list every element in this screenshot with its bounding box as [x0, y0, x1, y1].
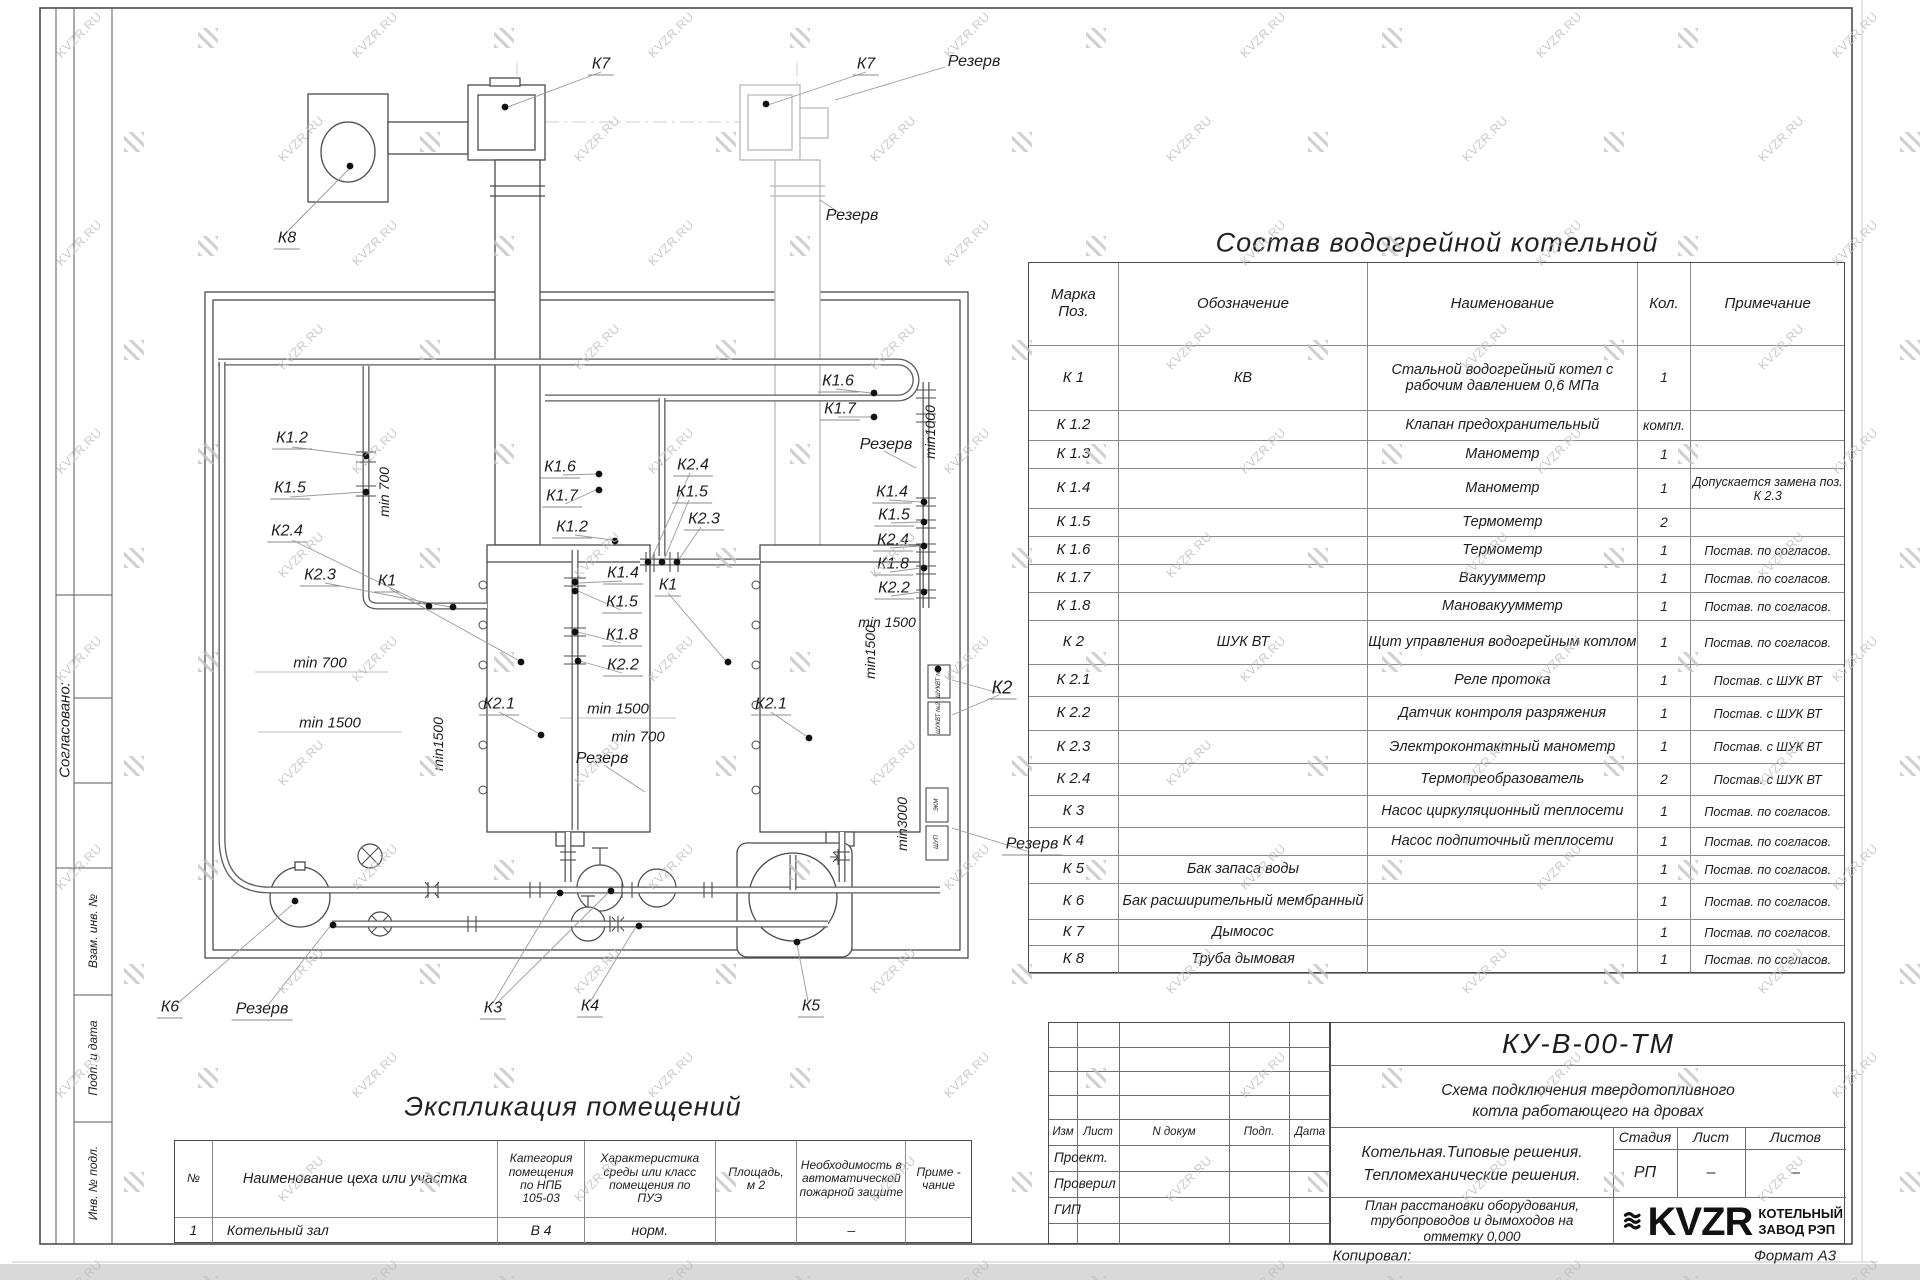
equipment-cell [1368, 920, 1637, 945]
equipment-row: К 8Труба дымовая1Постав. по согласов. [1029, 946, 1844, 974]
equipment-cell: Насос циркуляционный теплосети [1368, 796, 1637, 827]
equipment-cell: 1 [1638, 469, 1692, 508]
expansion-tank-k6 [270, 862, 330, 927]
equipment-cell [1119, 469, 1368, 508]
equipment-cell: Допускается замена поз. К 2.3 [1691, 469, 1844, 508]
equipment-cell: ШУК ВТ [1119, 621, 1368, 664]
equipment-cell: Труба дымовая [1119, 946, 1368, 973]
equipment-cell [1119, 828, 1368, 855]
equipment-cell: К 2.3 [1029, 731, 1119, 763]
equipment-cell: Клапан предохранительный [1368, 411, 1637, 440]
drawing-sheet: Согласовано: Взам. инв. № Подп. и дата И… [0, 0, 1920, 1280]
rooms-row: 1Котельный залВ 4норм.– [175, 1218, 971, 1243]
equipment-cell [1119, 537, 1368, 564]
rooms-table-title: Экспликация помещений [404, 1092, 741, 1123]
equipment-cell: К 1.7 [1029, 565, 1119, 592]
sheet-title: План расстановки оборудования, трубопров… [1331, 1197, 1613, 1245]
rev-role-cell: Проект. [1049, 1145, 1119, 1171]
equipment-cell: Постав. по согласов. [1691, 621, 1844, 664]
equipment-row: К 2.3Электроконтактный манометр1Постав. … [1029, 731, 1844, 764]
equipment-cell: К 7 [1029, 920, 1119, 945]
rooms-header-cell: Категория помещения по НПБ 105-03 [498, 1141, 585, 1217]
doc-number: КУ-В-00-ТМ [1331, 1023, 1846, 1065]
equipment-cell: Постав. по согласов. [1691, 796, 1844, 827]
rev-header-cell: Лист [1077, 1119, 1119, 1145]
title-block: КУ-В-00-ТМ Схема подключения твердотопли… [1330, 1022, 1845, 1244]
equipment-cell: Постав. с ШУК ВТ [1691, 665, 1844, 696]
equipment-cell: К 2.1 [1029, 665, 1119, 696]
equipment-cell: 1 [1638, 828, 1692, 855]
equipment-cell [1691, 411, 1844, 440]
equipment-cell: Бак запаса воды [1119, 856, 1368, 883]
equipment-cell: Постав. по согласов. [1691, 565, 1844, 592]
equipment-cell: Постав. с ШУК ВТ [1691, 697, 1844, 730]
equipment-cell: К 1.6 [1029, 537, 1119, 564]
equipment-cell: Электроконтактный манометр [1368, 731, 1637, 763]
equipment-cell: 1 [1638, 537, 1692, 564]
stage-value-cell: РП [1613, 1149, 1677, 1197]
equipment-cell: К 1.4 [1029, 469, 1119, 508]
equipment-cell: Вакуумметр [1368, 565, 1637, 592]
equipment-cell: Постав. по согласов. [1691, 920, 1844, 945]
equipment-row: К 1КВСтальной водогрейный котел с рабочи… [1029, 346, 1844, 411]
rooms-header-cell: Приме - чание [906, 1141, 971, 1217]
equipment-header-cell: Примечание [1691, 263, 1844, 345]
page-edge [0, 1264, 1920, 1280]
equipment-cell: Бак расширительный мембранный [1119, 884, 1368, 919]
rooms-header-cell: Наименование цеха или участка [213, 1141, 498, 1217]
equipment-cell [1368, 856, 1637, 883]
equipment-header-cell: Кол. [1638, 263, 1692, 345]
format-note: Формат А3 [1754, 1248, 1836, 1265]
equipment-cell: Мановакуумметр [1368, 593, 1637, 620]
rooms-table: №Наименование цеха или участкаКатегория … [174, 1140, 972, 1243]
equipment-cell: Постав. по согласов. [1691, 884, 1844, 919]
equipment-cell: 1 [1638, 441, 1692, 468]
equipment-cell [1691, 441, 1844, 468]
equipment-row: К 2.4Термопреобразователь2Постав. с ШУК … [1029, 764, 1844, 796]
control-panel-k2 [926, 665, 950, 860]
rooms-cell: Котельный зал [213, 1218, 498, 1243]
rev-header-cell: Дата [1289, 1119, 1331, 1145]
side-label-vzam: Взам. инв. № [86, 894, 100, 968]
equipment-cell: Постав. по согласов. [1691, 537, 1844, 564]
side-label-podp: Подп. и дата [86, 1020, 100, 1095]
equipment-cell: Манометр [1368, 469, 1637, 508]
equipment-cell: 1 [1638, 796, 1692, 827]
equipment-cell: Термометр [1368, 537, 1637, 564]
stage-header-cell: Стадия [1613, 1127, 1677, 1149]
equipment-row: К 1.3Манометр1 [1029, 441, 1844, 469]
equipment-cell [1119, 509, 1368, 536]
rooms-cell [716, 1218, 798, 1243]
equipment-cell: Дымосос [1119, 920, 1368, 945]
equipment-cell [1691, 346, 1844, 410]
equipment-cell: К 3 [1029, 796, 1119, 827]
kvzr-logo-mark [1623, 1205, 1642, 1239]
equipment-row: К 1.7Вакуумметр1Постав. по согласов. [1029, 565, 1844, 593]
rev-header-cell: Подп. [1229, 1119, 1289, 1145]
kvzr-logo-text: KVZR [1648, 1200, 1753, 1245]
equipment-cell: К 2.2 [1029, 697, 1119, 730]
equipment-cell [1119, 441, 1368, 468]
equipment-cell: К 6 [1029, 884, 1119, 919]
equipment-cell: К 1.2 [1029, 411, 1119, 440]
rev-header-cell: Изм [1049, 1119, 1077, 1145]
equipment-header-row: Марка Поз.ОбозначениеНаименованиеКол.При… [1029, 263, 1844, 346]
project-line1: Котельная.Типовые решения. [1331, 1141, 1613, 1164]
equipment-row: К 1.2Клапан предохранительныйкомпл. [1029, 411, 1844, 441]
rooms-header-row: №Наименование цеха или участкаКатегория … [175, 1141, 971, 1218]
equipment-cell: К 2 [1029, 621, 1119, 664]
rooms-cell: норм. [585, 1218, 716, 1243]
equipment-cell [1119, 697, 1368, 730]
equipment-cell: 1 [1638, 346, 1692, 410]
equipment-cell: 1 [1638, 856, 1692, 883]
side-label-agreed: Согласовано: [57, 682, 74, 778]
equipment-cell: Постав. по согласов. [1691, 856, 1844, 883]
equipment-row: К 6Бак расширительный мембранный1Постав.… [1029, 884, 1844, 920]
equipment-cell [1119, 593, 1368, 620]
equipment-row: К 1.5Термометр2 [1029, 509, 1844, 537]
equipment-cell: К 4 [1029, 828, 1119, 855]
stage-header-cell: Лист [1677, 1127, 1745, 1149]
equipment-row: К 5Бак запаса воды1Постав. по согласов. [1029, 856, 1844, 884]
equipment-cell: Термопреобразователь [1368, 764, 1637, 795]
company-line2: ЗАВОД РЭП [1758, 1222, 1843, 1238]
equipment-cell: К 1.5 [1029, 509, 1119, 536]
equipment-row: К 2.1Реле протока1Постав. с ШУК ВТ [1029, 665, 1844, 697]
rooms-header-cell: № [175, 1141, 213, 1217]
doc-title-line1: Схема подключения твердотопливного [1331, 1081, 1846, 1102]
equipment-cell [1368, 884, 1637, 919]
equipment-cell: 1 [1638, 621, 1692, 664]
project-line2: Тепломеханические решения. [1331, 1164, 1613, 1187]
equipment-row: К 4Насос подпиточный теплосети1Постав. п… [1029, 828, 1844, 856]
rooms-cell [906, 1218, 971, 1243]
equipment-cell: 1 [1638, 920, 1692, 945]
equipment-cell: К 1 [1029, 346, 1119, 410]
equipment-cell [1119, 565, 1368, 592]
equipment-cell: 1 [1638, 665, 1692, 696]
equipment-cell [1119, 665, 1368, 696]
equipment-cell: 1 [1638, 884, 1692, 919]
stage-value-cell: – [1677, 1149, 1745, 1197]
rooms-cell: В 4 [498, 1218, 585, 1243]
equipment-cell [1119, 796, 1368, 827]
rooms-header-cell: Необходимость в автоматической пожарной … [797, 1141, 906, 1217]
revision-table: ИзмЛистN докумПодп.ДатаПроект.ПроверилГИ… [1048, 1022, 1330, 1244]
equipment-cell: Постав. по согласов. [1691, 593, 1844, 620]
equipment-row: К 2ШУК ВТЩит управления водогрейным котл… [1029, 621, 1844, 665]
rev-role-cell: ГИП [1049, 1197, 1119, 1223]
equipment-table-title: Состав водогрейной котельной [1216, 228, 1659, 259]
stage-value-cell: – [1745, 1149, 1846, 1197]
equipment-cell: Стальной водогрейный котел с рабочим дав… [1368, 346, 1637, 410]
doc-title-line2: котла работающего на дровах [1331, 1102, 1846, 1123]
boiler-k1 [487, 545, 920, 846]
equipment-cell [1368, 946, 1637, 973]
equipment-header-cell: Наименование [1368, 263, 1637, 345]
equipment-cell [1691, 509, 1844, 536]
rev-role-cell: Проверил [1049, 1171, 1119, 1197]
equipment-row: К 1.8Мановакуумметр1Постав. по согласов. [1029, 593, 1844, 621]
company-line1: КОТЕЛЬНЫЙ [1758, 1206, 1843, 1222]
equipment-cell [1119, 764, 1368, 795]
copied-label: Копировал: [1333, 1248, 1412, 1265]
equipment-cell: 2 [1638, 509, 1692, 536]
equipment-cell: компл. [1638, 411, 1692, 440]
equipment-cell: К 1.3 [1029, 441, 1119, 468]
equipment-cell: 1 [1638, 593, 1692, 620]
reserve-fan-k7 [740, 85, 828, 545]
rev-header-cell: N докум [1119, 1119, 1229, 1145]
equipment-cell [1119, 731, 1368, 763]
equipment-cell: Реле протока [1368, 665, 1637, 696]
equipment-row: К 7Дымосос1Постав. по согласов. [1029, 920, 1844, 946]
equipment-cell: Насос подпиточный теплосети [1368, 828, 1637, 855]
equipment-cell: КВ [1119, 346, 1368, 410]
equipment-cell: К 8 [1029, 946, 1119, 973]
kvzr-logo: KVZR КОТЕЛЬНЫЙ ЗАВОД РЭП [1623, 1205, 1843, 1239]
equipment-header-cell: Марка Поз. [1029, 263, 1119, 345]
equipment-row: К 1.6Термометр1Постав. по согласов. [1029, 537, 1844, 565]
rooms-header-cell: Площадь, м 2 [716, 1141, 798, 1217]
equipment-header-cell: Обозначение [1119, 263, 1368, 345]
equipment-cell: К 1.8 [1029, 593, 1119, 620]
rooms-cell: – [797, 1218, 906, 1243]
stage-header-cell: Листов [1745, 1127, 1846, 1149]
equipment-cell: 1 [1638, 731, 1692, 763]
equipment-cell: 1 [1638, 697, 1692, 730]
smoke-fan-k7 [468, 78, 545, 545]
rooms-cell: 1 [175, 1218, 213, 1243]
side-label-inv: Инв. № подл. [86, 1146, 100, 1220]
equipment-cell: 1 [1638, 946, 1692, 973]
equipment-cell: Постав. с ШУК ВТ [1691, 764, 1844, 795]
equipment-row: К 3Насос циркуляционный теплосети1Постав… [1029, 796, 1844, 828]
equipment-cell: К 5 [1029, 856, 1119, 883]
equipment-cell: Постав. с ШУК ВТ [1691, 731, 1844, 763]
equipment-cell: 2 [1638, 764, 1692, 795]
equipment-cell: Манометр [1368, 441, 1637, 468]
equipment-cell: Постав. по согласов. [1691, 946, 1844, 973]
equipment-table: Марка Поз.ОбозначениеНаименованиеКол.При… [1028, 262, 1845, 973]
equipment-cell: Датчик контроля разряжения [1368, 697, 1637, 730]
equipment-cell: Термометр [1368, 509, 1637, 536]
equipment-cell [1119, 411, 1368, 440]
equipment-row: К 1.4Манометр1Допускается замена поз. К … [1029, 469, 1844, 509]
rooms-header-cell: Характеристика среды или класс помещения… [585, 1141, 716, 1217]
equipment-cell: Постав. по согласов. [1691, 828, 1844, 855]
equipment-cell: Щит управления водогрейным котлом [1368, 621, 1637, 664]
equipment-row: К 2.2Датчик контроля разряжения1Постав. … [1029, 697, 1844, 731]
equipment-cell: 1 [1638, 565, 1692, 592]
equipment-cell: К 2.4 [1029, 764, 1119, 795]
